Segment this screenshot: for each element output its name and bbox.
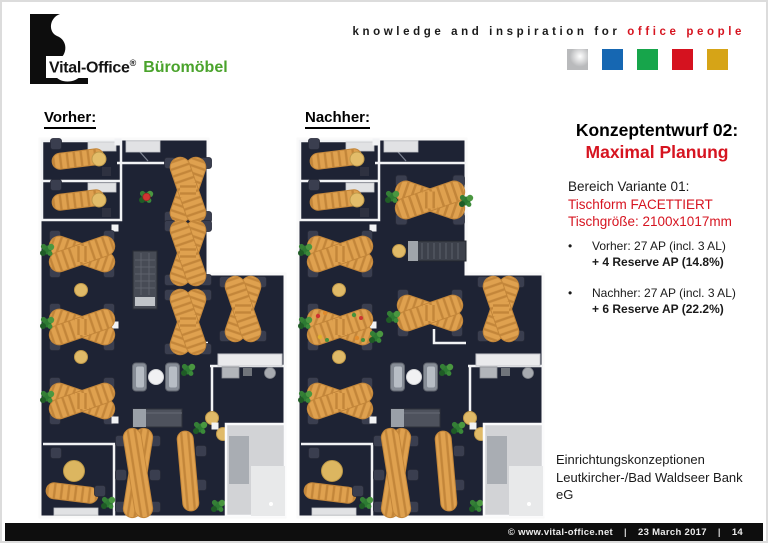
footer-divider: | — [718, 527, 721, 538]
footer-date: 23 March 2017 — [638, 527, 707, 538]
logo-brand-text: Vital-Office — [49, 59, 130, 76]
after-plan-label: Nachher: — [305, 109, 370, 129]
stat-after: Nachher: 27 AP (incl. 3 AL) + 6 Reserve … — [568, 286, 736, 317]
logo-suffix-text: Büromöbel — [143, 59, 227, 76]
registered-mark-icon: ® — [130, 58, 137, 68]
variant-table-shape: Tischform FACETTIERT — [568, 196, 732, 214]
project-line1: Einrichtungskonzeptionen — [556, 451, 743, 469]
concept-title-line2: Maximal Planung — [546, 141, 768, 163]
logo-wordmark: Vital-Office®Büromöbel — [46, 56, 231, 78]
variant-table-size: Tischgröße: 2100x1017mm — [568, 213, 732, 231]
vital-office-logo: Vital-Office®Büromöbel — [30, 14, 231, 86]
variant-area: Bereich Variante 01: — [568, 178, 732, 196]
project-line3: eG — [556, 486, 743, 504]
footer-page-number: 14 — [732, 527, 743, 538]
stat-before-line1: Vorher: 27 AP (incl. 3 AL) — [592, 239, 726, 255]
concept-title-line1: Konzeptentwurf 02: — [546, 119, 768, 141]
footer-bar: © www.vital-office.net|23 March 2017|14 — [5, 523, 763, 543]
variant-block: Bereich Variante 01: Tischform FACETTIER… — [568, 178, 732, 231]
stool — [393, 245, 406, 258]
slide: Vital-Office®Büromöbel knowledge and ins… — [0, 0, 768, 543]
stat-after-line1: Nachher: 27 AP (incl. 3 AL) — [592, 286, 736, 302]
project-line2: Leutkircher-/Bad Waldseer Bank — [556, 469, 743, 487]
before-floorplan — [38, 137, 288, 519]
concept-title: Konzeptentwurf 02: Maximal Planung — [546, 119, 768, 163]
stat-after-line2: + 6 Reserve AP (22.2%) — [592, 302, 736, 318]
before-plan-label: Vorher: — [44, 109, 96, 129]
info-panel: Konzeptentwurf 02: Maximal Planung Berei… — [546, 2, 768, 541]
after-floorplan — [296, 137, 546, 519]
workstation-stats: Vorher: 27 AP (incl. 3 AL) + 4 Reserve A… — [568, 239, 736, 333]
project-block: Einrichtungskonzeptionen Leutkircher-/Ba… — [556, 451, 743, 504]
stat-before-line2: + 4 Reserve AP (14.8%) — [592, 255, 726, 271]
stat-before: Vorher: 27 AP (incl. 3 AL) + 4 Reserve A… — [568, 239, 736, 270]
copier-cabinet — [133, 251, 157, 309]
footer-site: © www.vital-office.net — [508, 527, 613, 538]
footer-divider: | — [624, 527, 627, 538]
sideboard-cabinet — [408, 241, 466, 261]
